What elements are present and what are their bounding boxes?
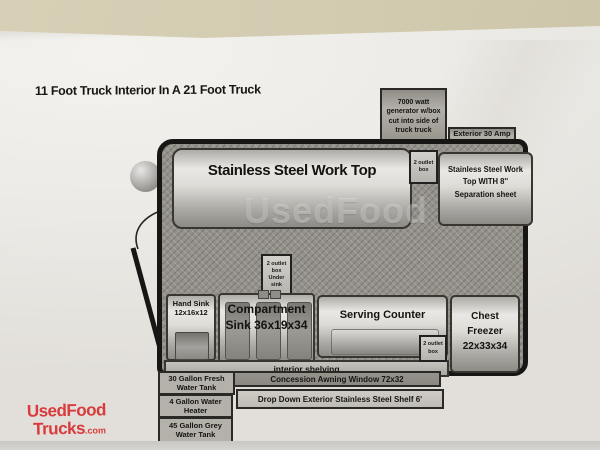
- awning-window-label: Concession Awning Window 72x32: [233, 371, 441, 387]
- fresh-water-tank-label: 30 Gallon Fresh Water Tank: [158, 371, 235, 395]
- compartment-sink: Compartment Sink 36x19x34: [218, 293, 315, 363]
- outlet-box-top: 2 outlet box: [409, 150, 438, 184]
- hand-sink-label: Hand Sink 12x16x12: [173, 299, 210, 317]
- watermark-text: UsedFood: [226, 190, 446, 232]
- outlet-box-serving: 2 outlet box: [419, 335, 447, 362]
- logo-line-1: UsedFood: [27, 401, 106, 420]
- compartment-sink-label: Compartment Sink 36x19x34: [220, 301, 313, 333]
- photo-bottom-edge: [0, 441, 600, 450]
- worktop-label: Stainless Steel Work Top: [208, 162, 376, 179]
- photographed-floor-plan: 11 Foot Truck Interior In A 21 Foot Truc…: [0, 0, 600, 450]
- drop-down-shelf-label: Drop Down Exterior Stainless Steel Shelf…: [236, 389, 444, 409]
- separation-worktop-line: Top WITH 8'': [445, 175, 527, 187]
- faucet: [270, 290, 281, 299]
- generator-callout: 7000 watt generator w/box cut into side …: [380, 88, 447, 145]
- chest-freezer: Chest Freezer 22x33x34: [450, 295, 520, 373]
- serving-counter-label: Serving Counter: [340, 309, 426, 321]
- truck-body: Stainless Steel Work Top UsedFood 2 outl…: [157, 139, 528, 376]
- hand-sink-basin: [175, 332, 209, 360]
- hand-sink: Hand Sink 12x16x12: [166, 294, 216, 361]
- grey-water-tank-label: 45 Gallon Grey Water Tank: [158, 417, 233, 443]
- separation-worktop-line: Stainless Steel Work: [445, 163, 527, 175]
- diagram-title: 11 Foot Truck Interior In A 21 Foot Truc…: [35, 82, 325, 98]
- logo-tld-text: .com: [85, 425, 106, 435]
- logo-line-2: Trucks.com: [33, 419, 106, 438]
- logo-trucks-text: Trucks: [33, 419, 85, 439]
- separation-worktop-panel: Stainless Steel Work Top WITH 8'' Separa…: [438, 152, 533, 226]
- separation-worktop-line: Separation sheet: [445, 188, 527, 200]
- faucet: [258, 290, 269, 299]
- water-heater-label: 4 Gallon Water Heater: [158, 394, 233, 418]
- site-logo: UsedFood Trucks.com: [27, 401, 107, 438]
- stainless-worktop-panel: Stainless Steel Work Top UsedFood: [172, 148, 412, 229]
